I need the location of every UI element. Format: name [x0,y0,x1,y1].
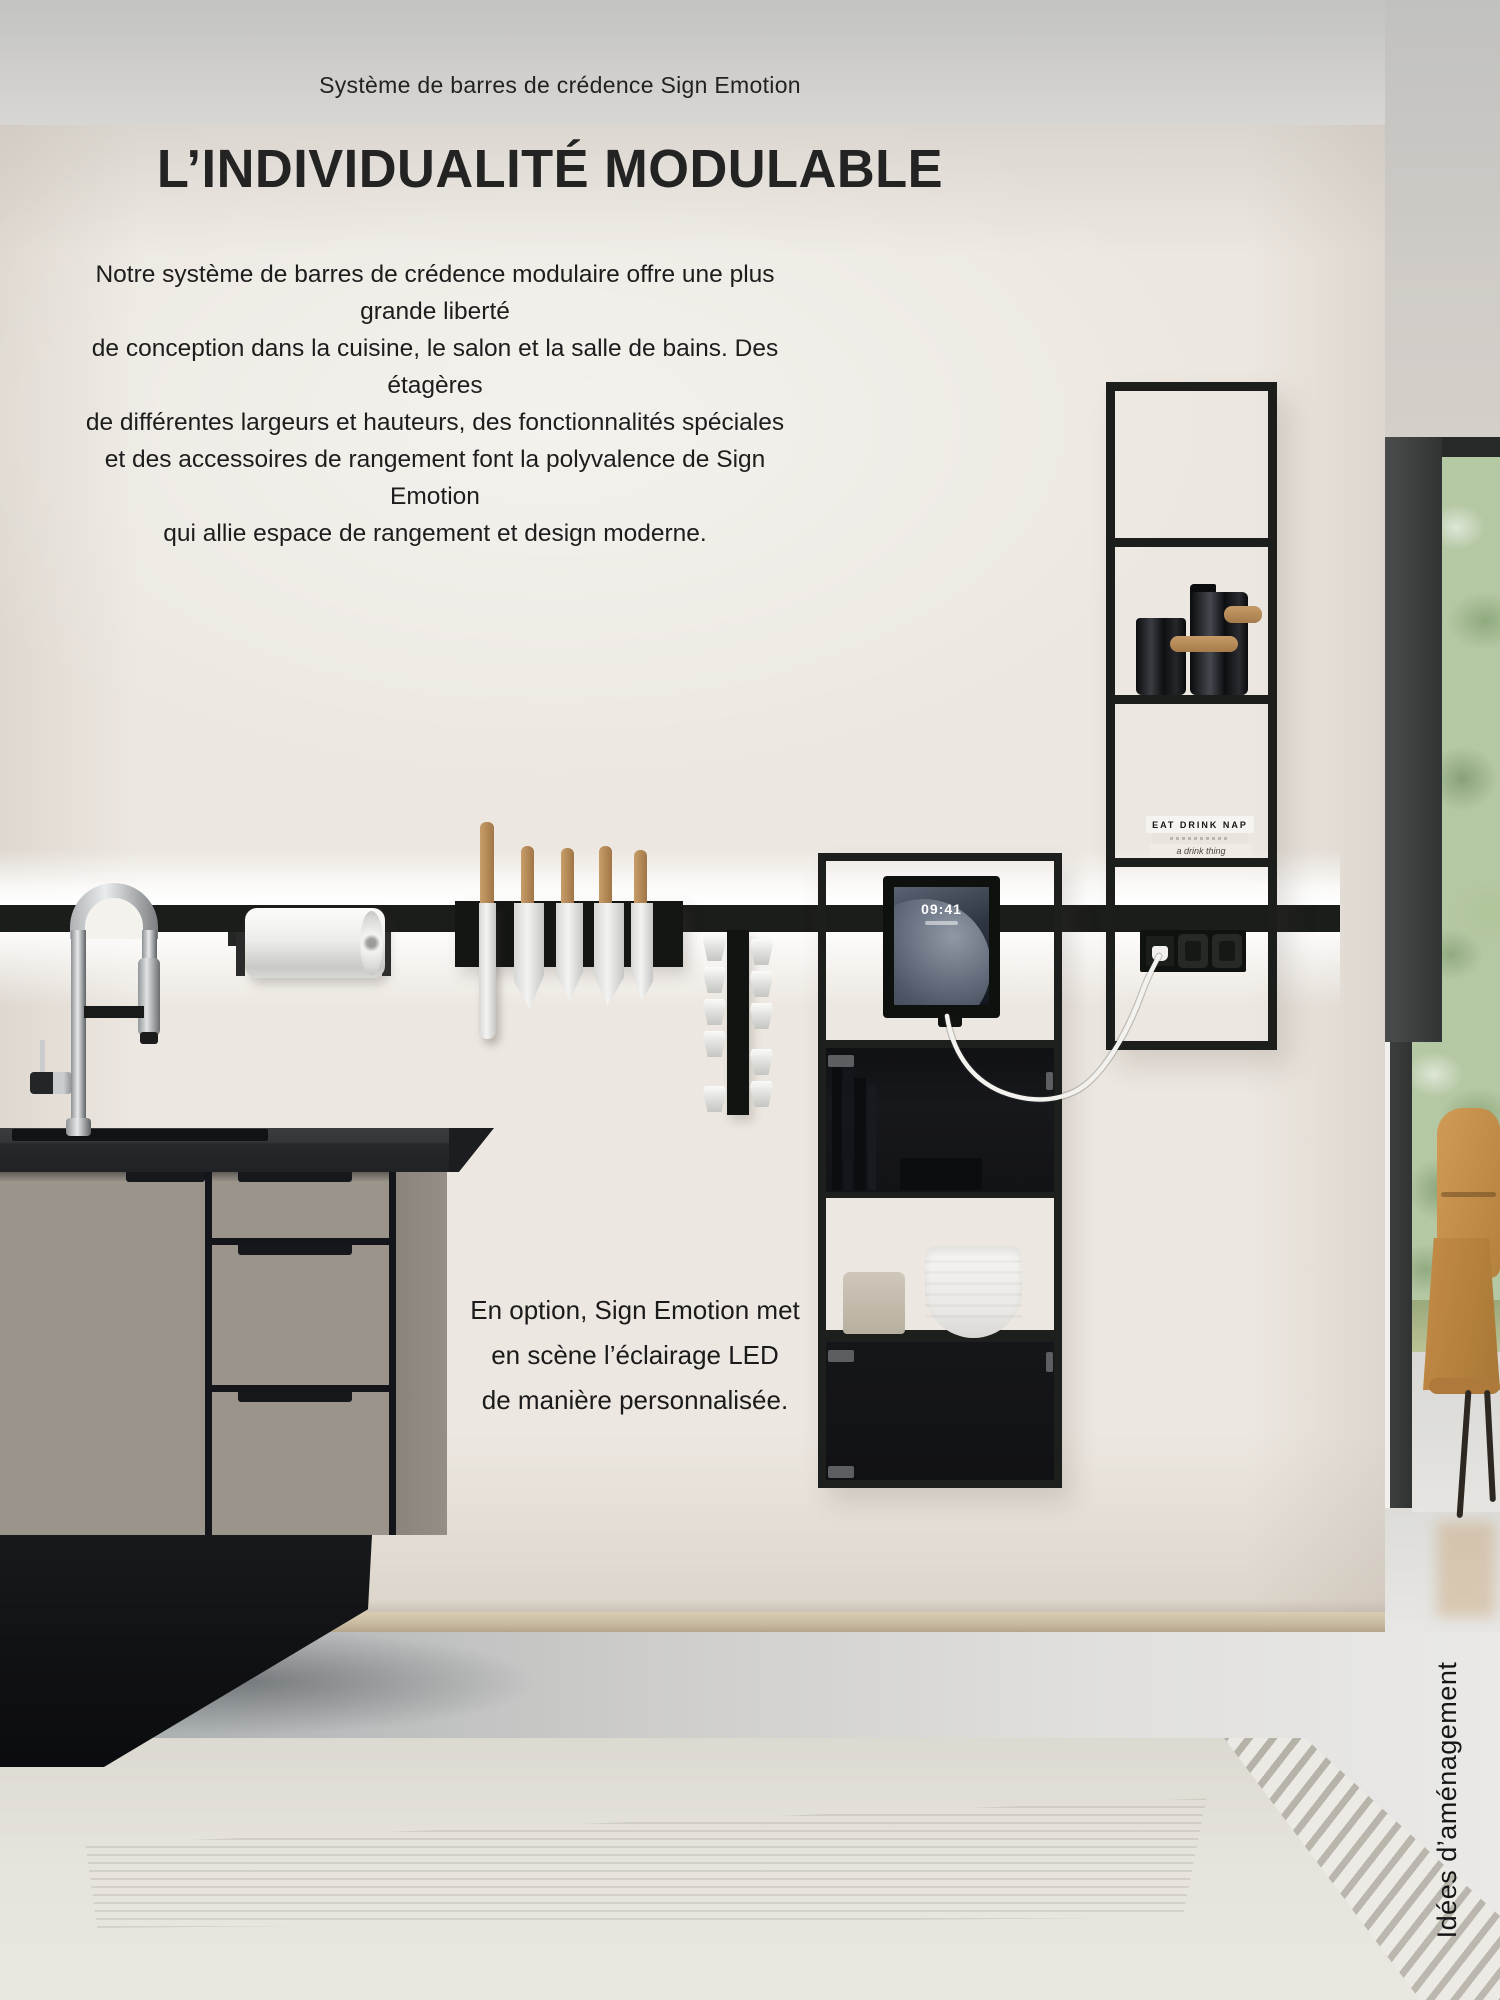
hinge [828,1055,854,1067]
kicker: Système de barres de crédence Sign Emoti… [230,72,890,99]
knife-handle [521,846,534,906]
cabinet-gap [205,1172,212,1535]
hinge [1046,1352,1053,1372]
book-silhouette [844,1070,852,1190]
drawer-handle-notch [238,1392,352,1402]
black-cup [1136,618,1186,695]
book-spine: EAT DRINK NAP [1146,816,1254,833]
armchair-shell [1423,1238,1500,1390]
window-greenery-upper [1442,457,1500,1042]
shelf-divider [1115,858,1268,867]
knife-handle [634,850,647,906]
capsule-holder-bar [727,930,749,1115]
hinge [828,1466,854,1478]
wall-unit-cabinet-door [826,1342,1054,1480]
paper-towel-roll-end [360,911,383,975]
recess-ceiling [1385,0,1500,437]
ceiling [0,0,1500,125]
hinge [828,1350,854,1362]
led-caption: En option, Sign Emotion met en scène l’é… [460,1288,810,1423]
faucet-crossbar [84,1006,144,1018]
bread-knife-blade [479,903,496,1039]
drawer-gap [212,1385,389,1392]
cabinet-top-shadow [0,1172,447,1182]
window-recess [1385,0,1500,1700]
island-side-panel [396,1172,447,1535]
book-spine-text-blur [1170,837,1230,840]
intro-line: de conception dans la cuisine, le salon … [85,330,785,404]
hinge [1046,1072,1053,1090]
wooden-handle [1170,636,1238,652]
wall-unit-bar [826,1192,1054,1198]
drawer-handle-notch [238,1172,352,1182]
intro-line: Notre système de barres de crédence modu… [85,256,785,330]
tablet-clock: 09:41 [894,901,989,917]
bowl-ridges [925,1260,1022,1320]
book-silhouette [868,1086,876,1190]
wall-unit-bar [826,1040,1054,1048]
dark-wall-pillar [1385,437,1448,1042]
intro-line: qui allie espace de rangement et design … [85,515,785,552]
drawer-handle-notch [238,1245,352,1255]
window-frame-top [1442,437,1500,457]
knife-handle [480,822,494,906]
ceramic-jar [843,1272,905,1334]
book-spine: a drink thing [1150,844,1252,858]
intro-line: de différentes largeurs et hauteurs, des… [85,404,785,441]
caption-line: de manière personnalisée. [460,1378,810,1423]
shelf-divider [1115,538,1268,547]
book-silhouette [854,1078,866,1190]
drawer-gap [212,1238,389,1245]
intro-line: et des accessoires de rangement font la … [85,441,785,515]
wooden-handle [1224,606,1262,623]
window-frame-vertical [1390,1042,1412,1520]
tablet-screen: 09:41 [894,887,989,1005]
faucet-column [71,930,86,1132]
faucet-base [66,1118,91,1136]
book-silhouette [832,1062,842,1190]
caption-line: En option, Sign Emotion met [460,1288,810,1333]
door-handle-notch [126,1172,205,1182]
caption-line: en scène l’éclairage LED [460,1333,810,1378]
soap-dispenser-neck [40,1040,45,1076]
socket-inner [1185,941,1201,961]
armchair-seam [1441,1192,1496,1197]
island-cabinets [0,1172,447,1535]
sink-basin [12,1129,268,1141]
rug-texture-bands [50,1793,1230,1928]
socket-inner [1219,941,1235,961]
knife-handle [561,848,574,906]
tablet-date-line [925,921,958,925]
chair-reflection [1437,1522,1495,1617]
side-label: Idées d’aménagement [1432,1650,1472,1950]
catalog-page: 09:41 EAT DRINK NAP a drink thing [0,0,1500,2000]
shelf-divider [1115,695,1268,704]
soap-dispenser-head [30,1072,72,1094]
knife-handle [599,846,612,906]
towel-holder-arm [236,932,245,976]
intro-paragraph: Notre système de barres de crédence modu… [85,256,785,552]
box-silhouette [900,1158,982,1190]
faucet-sprayer-tip [140,1032,158,1044]
page-title: L’INDIVIDUALITÉ MODULABLE [94,138,1006,200]
cabinet-gap [389,1172,396,1535]
tablet-mount [938,1018,962,1027]
usb-plug [1152,946,1168,961]
faucet-sprayer [138,958,160,1036]
rug [0,1738,1500,2000]
